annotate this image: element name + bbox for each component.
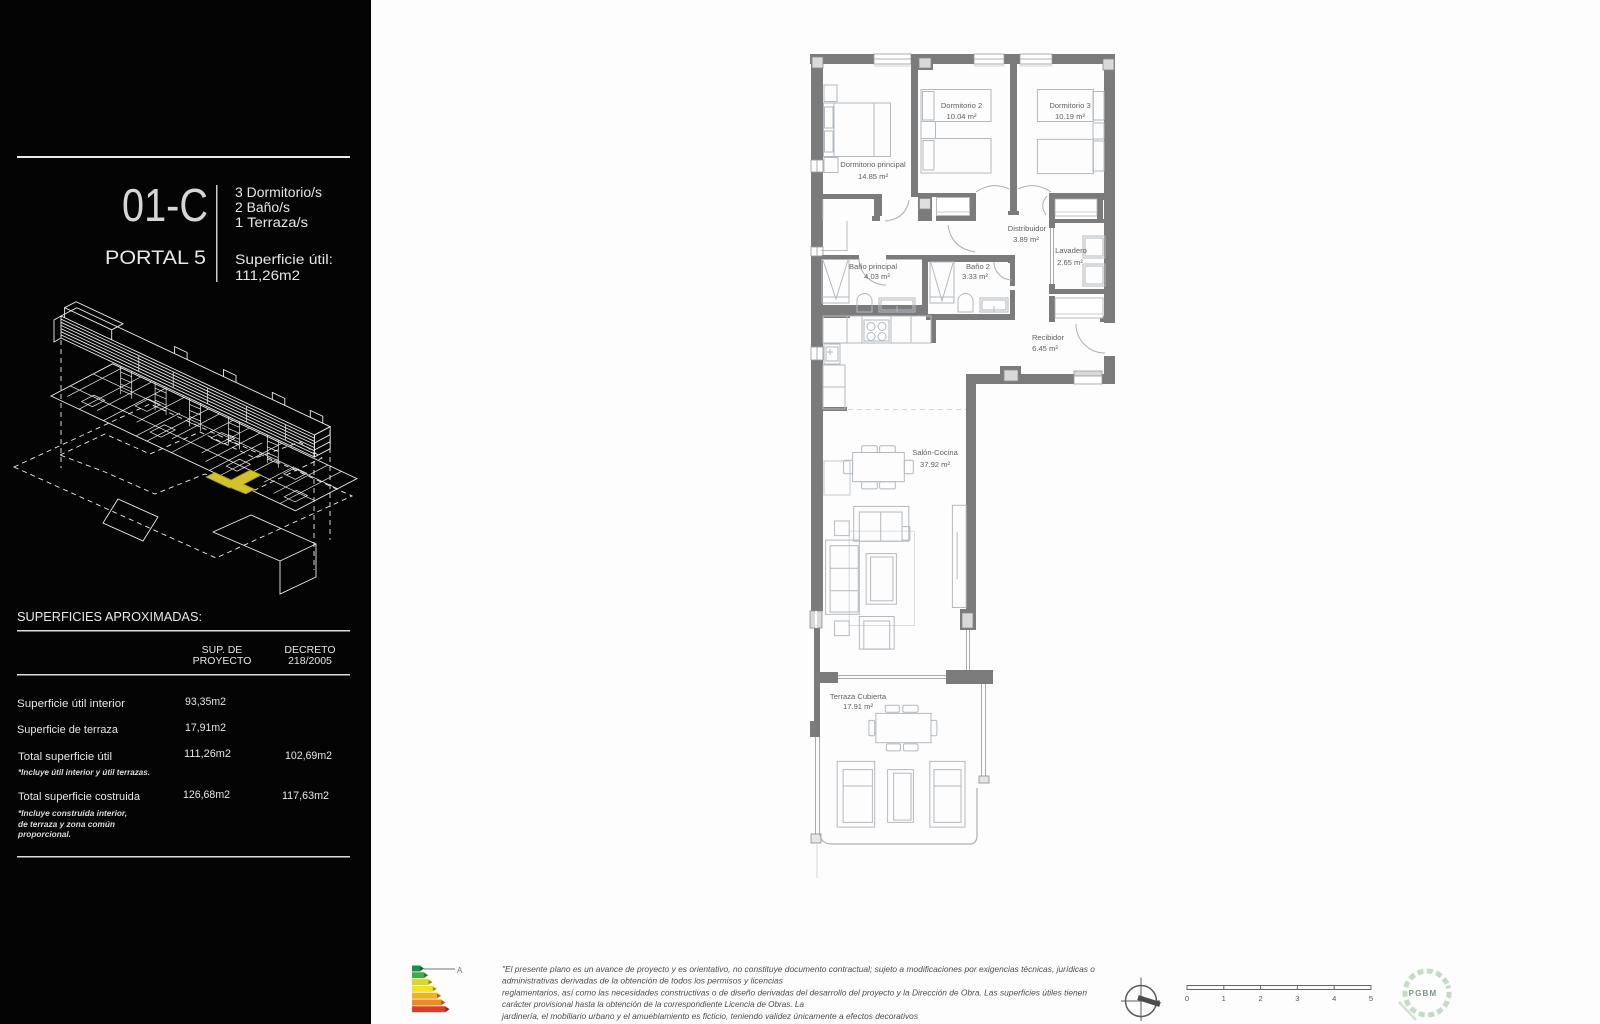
svg-text:3: 3 (1295, 994, 1299, 1003)
svg-text:Dormitorio principal: Dormitorio principal (840, 160, 906, 169)
svg-text:111,26m2: 111,26m2 (184, 748, 231, 760)
svg-text:117,63m2: 117,63m2 (282, 790, 329, 802)
svg-text:de terraza y zona común: de terraza y zona común (18, 820, 115, 829)
svg-text:102,69m2: 102,69m2 (285, 750, 332, 762)
svg-text:Salón-Cocina: Salón-Cocina (912, 448, 958, 457)
svg-text:Total superficie costruida: Total superficie costruida (18, 791, 141, 803)
svg-text:5: 5 (1369, 994, 1373, 1003)
svg-text:PORTAL 5: PORTAL 5 (105, 248, 206, 269)
svg-text:Lavadero: Lavadero (1055, 246, 1087, 255)
svg-text:jardinería, el mobiliario urba: jardinería, el mobiliario urbano y el am… (501, 1011, 919, 1021)
svg-text:Total superficie útil: Total superficie útil (18, 751, 112, 763)
svg-text:"El presente plano es un avanc: "El presente plano es un avance de proye… (502, 964, 1095, 974)
svg-text:3.33 m²: 3.33 m² (962, 272, 988, 281)
svg-text:2.65 m²: 2.65 m² (1057, 258, 1083, 267)
svg-text:93,35m2: 93,35m2 (185, 696, 226, 708)
svg-text:proporcional.: proporcional. (17, 830, 71, 839)
svg-text:17,91m2: 17,91m2 (185, 722, 226, 734)
svg-text:218/2005: 218/2005 (288, 655, 332, 667)
svg-text:Terraza Cubierta: Terraza Cubierta (830, 692, 887, 701)
svg-text:PROYECTO: PROYECTO (193, 655, 252, 667)
svg-text:10.19 m²: 10.19 m² (1055, 112, 1085, 121)
svg-text:2: 2 (1258, 994, 1262, 1003)
svg-text:Baño 2: Baño 2 (966, 262, 990, 271)
svg-text:2 Baño/s: 2 Baño/s (235, 200, 290, 215)
svg-text:126,68m2: 126,68m2 (183, 789, 230, 801)
svg-text:Baño principal: Baño principal (849, 262, 897, 271)
svg-text:4.03 m²: 4.03 m² (864, 272, 890, 281)
svg-text:01-C: 01-C (122, 179, 208, 231)
svg-text:PGBM: PGBM (1409, 989, 1438, 998)
svg-text:*Incluye útil interior y útil: *Incluye útil interior y útil terrazas. (18, 768, 150, 777)
svg-text:0: 0 (1185, 994, 1189, 1003)
svg-text:3.89 m²: 3.89 m² (1013, 235, 1039, 244)
svg-text:Superficie útil interior: Superficie útil interior (17, 698, 125, 710)
svg-text:14.85 m²: 14.85 m² (858, 172, 888, 181)
svg-text:Recibidor: Recibidor (1032, 333, 1065, 342)
svg-text:Distribuidor: Distribuidor (1008, 224, 1047, 233)
svg-text:SUPERFICIES APROXIMADAS:: SUPERFICIES APROXIMADAS: (17, 610, 202, 624)
svg-text:carácter provisional hasta la: carácter provisional hasta la obtención … (502, 999, 804, 1009)
svg-text:3 Dormitorio/s: 3 Dormitorio/s (235, 185, 322, 200)
svg-text:Dormitorio 2: Dormitorio 2 (941, 101, 982, 110)
svg-text:1: 1 (1222, 994, 1226, 1003)
svg-text:reglamentarios, así como las n: reglamentarios, así como las necesidades… (502, 988, 1087, 998)
svg-text:111,26m2: 111,26m2 (235, 268, 300, 283)
svg-text:administrativas derivadas de l: administrativas derivadas de la obtenció… (502, 976, 784, 986)
svg-text:37.92 m²: 37.92 m² (920, 460, 950, 469)
svg-text:6.45 m²: 6.45 m² (1032, 344, 1058, 353)
svg-text:Superficie de terraza: Superficie de terraza (17, 724, 119, 736)
svg-text:A: A (457, 966, 463, 975)
svg-text:Dormitorio 3: Dormitorio 3 (1049, 101, 1090, 110)
svg-text:*Incluye construida interior,: *Incluye construida interior, (18, 809, 127, 818)
svg-text:17.91 m²: 17.91 m² (843, 702, 873, 711)
svg-text:4: 4 (1332, 994, 1336, 1003)
svg-text:10.04 m²: 10.04 m² (947, 112, 977, 121)
svg-text:1 Terraza/s: 1 Terraza/s (235, 215, 308, 230)
svg-text:Superficie útil:: Superficie útil: (235, 252, 333, 267)
